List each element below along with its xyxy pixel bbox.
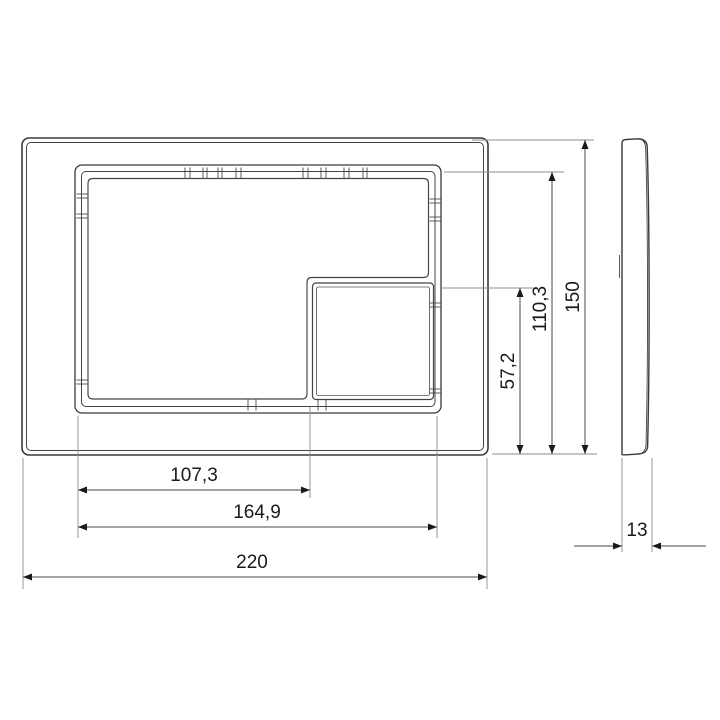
dimension-label: 164,9 xyxy=(233,502,281,523)
arrowhead-down xyxy=(517,445,524,454)
dimension-label: 107,3 xyxy=(170,465,218,486)
arrowhead-up xyxy=(549,172,556,181)
arrowhead-inward-right xyxy=(652,543,661,550)
dimension-overall-width: 220 xyxy=(23,552,487,581)
arrowhead-right xyxy=(428,524,437,531)
arrowhead-up xyxy=(582,140,589,149)
arrowhead-right xyxy=(301,487,310,494)
arrowhead-up xyxy=(517,288,524,297)
arrowhead-inward-left xyxy=(613,543,622,550)
dimension-label: 13 xyxy=(626,520,647,541)
dimension-thickness: 13 xyxy=(574,520,706,550)
arrowhead-left xyxy=(78,487,87,494)
dimension-label: 57,2 xyxy=(498,353,519,390)
dimension-label: 110,3 xyxy=(530,286,551,332)
technical-drawing-canvas: 57,2 110,3 150 107,3 164,9 220 xyxy=(0,0,720,720)
dimension-overall-height: 150 xyxy=(563,140,589,454)
dimension-label: 150 xyxy=(563,281,584,313)
dimension-large-button-width: 107,3 xyxy=(78,465,310,494)
plate-outline xyxy=(22,138,488,455)
front-view xyxy=(22,138,488,455)
arrowhead-left xyxy=(78,524,87,531)
arrowhead-left xyxy=(23,574,32,581)
dimension-label: 220 xyxy=(236,552,268,573)
arrowhead-down xyxy=(582,445,589,454)
side-profile-outline xyxy=(622,139,649,455)
arrowhead-right xyxy=(478,574,487,581)
side-view xyxy=(620,139,650,455)
dimension-opening-width: 164,9 xyxy=(78,502,437,531)
dimension-opening-height: 110,3 xyxy=(530,172,556,454)
dimension-small-button-height: 57,2 xyxy=(498,288,524,454)
arrowhead-down xyxy=(549,445,556,454)
